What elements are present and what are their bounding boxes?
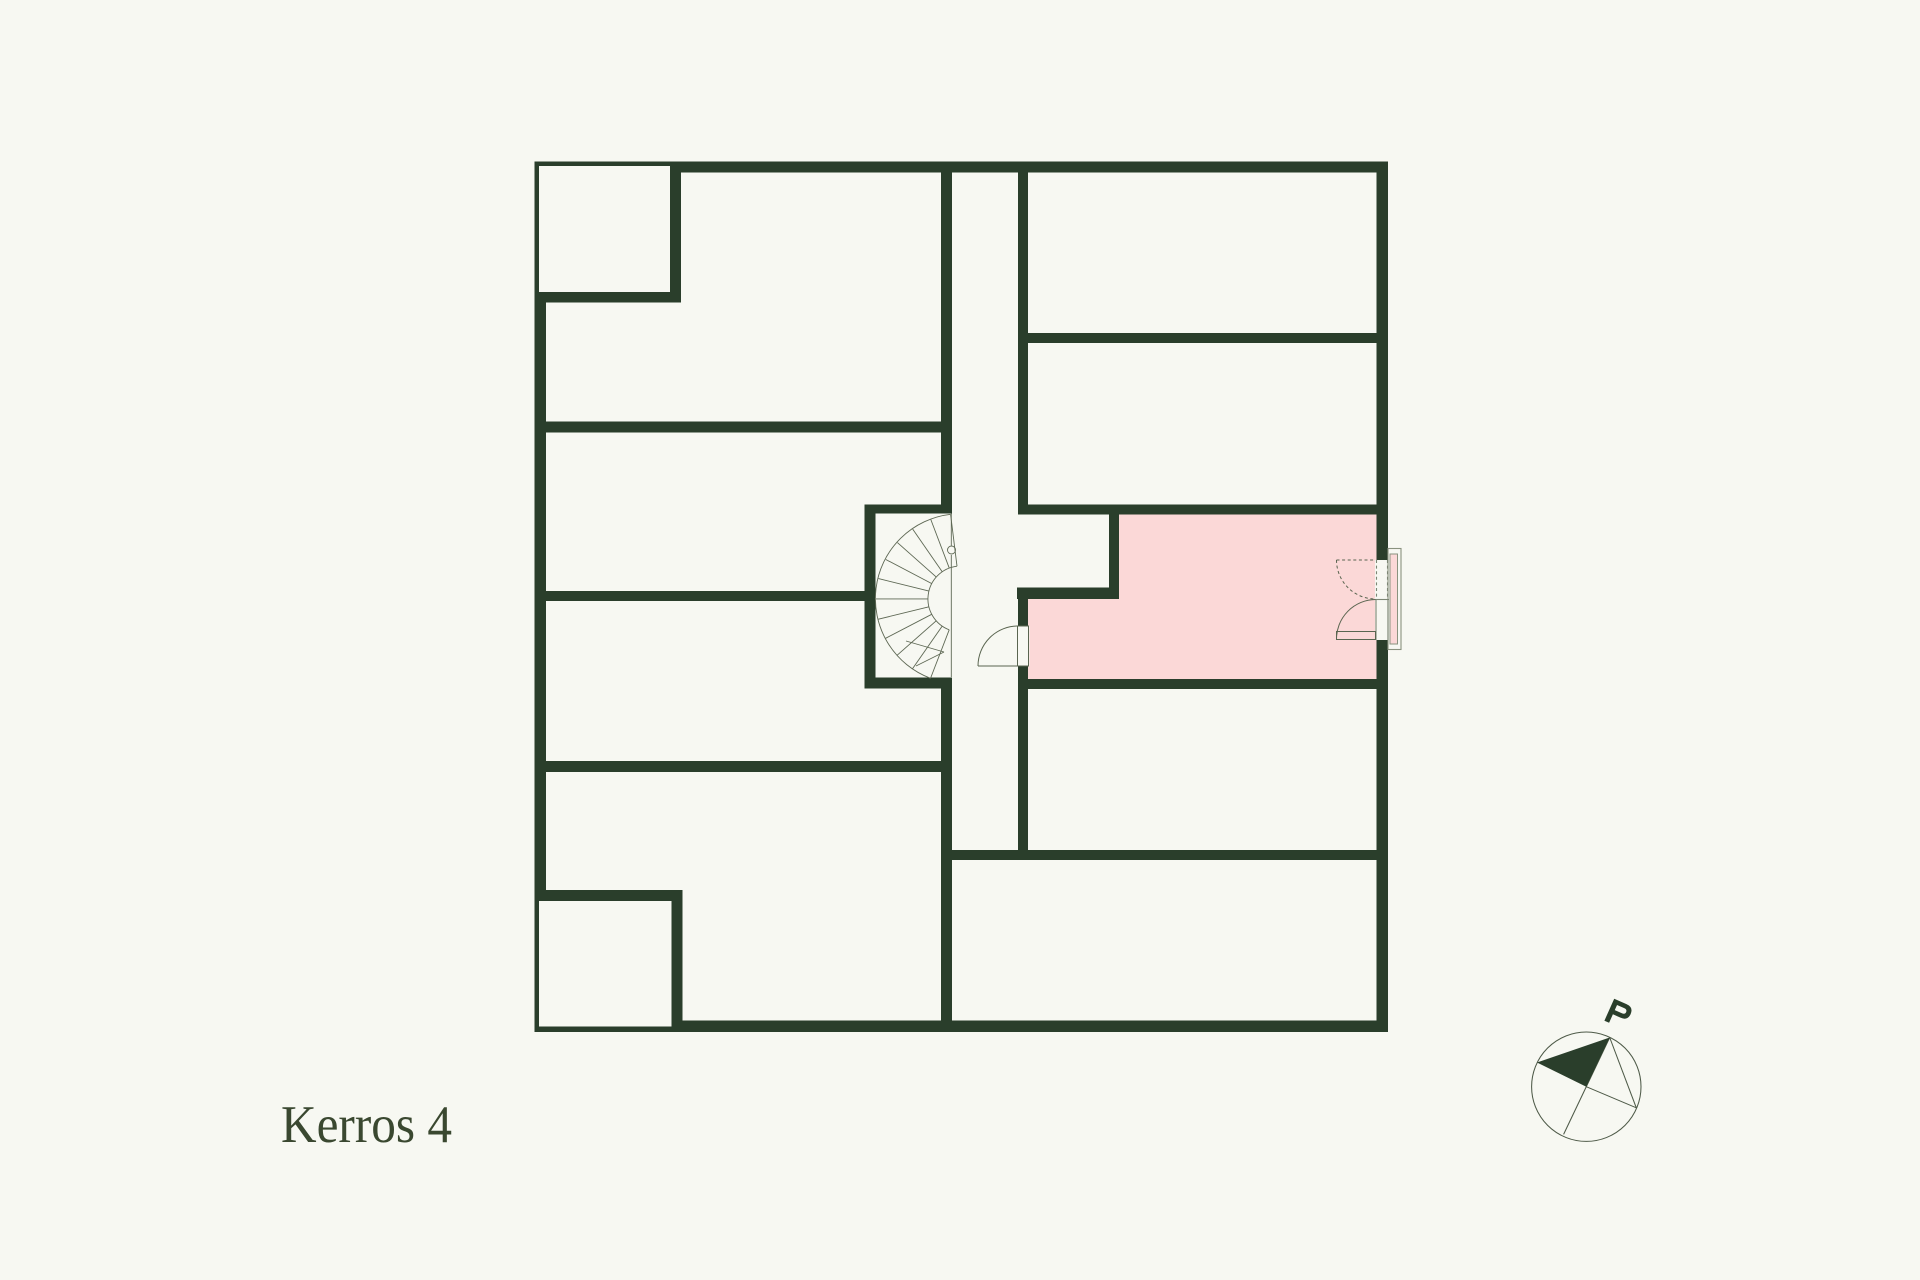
svg-text:Kerros 4: Kerros 4 [281,1096,452,1154]
